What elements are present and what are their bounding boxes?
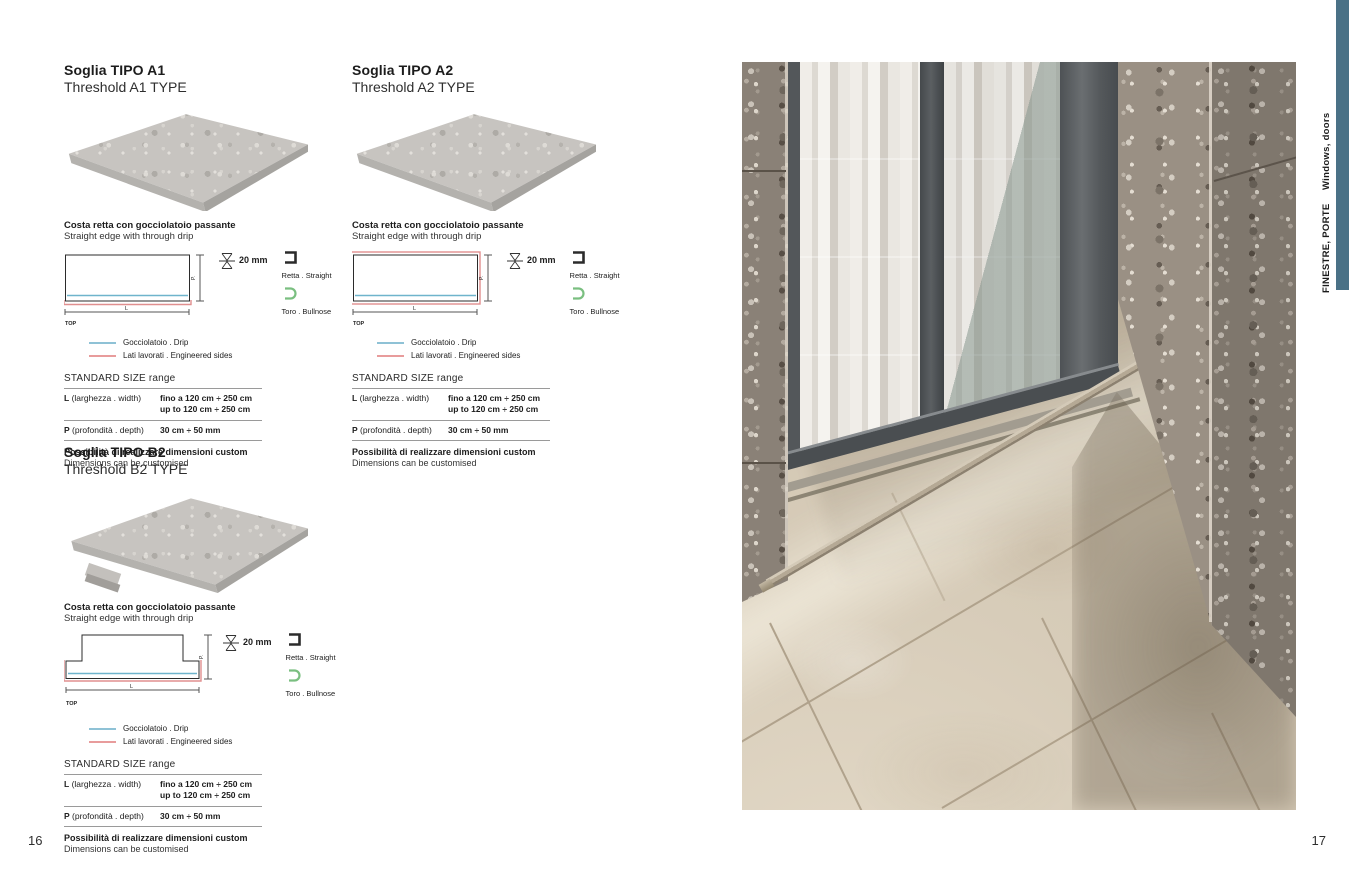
edge-heading-en: Straight edge with through drip [64, 613, 316, 624]
profile-bullnose-label: Toro . Bullnose [570, 307, 620, 316]
depth-label: P (profondità . depth) [64, 425, 160, 436]
top-label: TOP [65, 321, 77, 327]
top-label: TOP [353, 321, 365, 327]
profile-straight-label: Retta . Straight [570, 271, 620, 280]
drawing-legend: Gocciolatoio . Drip Lati lavorati . Engi… [89, 724, 316, 746]
thickness-spec: 20 mm [506, 251, 556, 271]
width-label: L (larghezza . width) [64, 779, 160, 802]
size-row-depth: P (profondità . depth) 30 cm ÷ 50 mm [352, 420, 550, 440]
depth-value: 30 cm ÷ 50 mm [160, 425, 262, 436]
thickness-value: 20 mm [239, 255, 268, 265]
depth-value: 30 cm ÷ 50 mm [160, 811, 262, 822]
custom-note-en: Dimensions can be customised [64, 844, 316, 854]
door-stile [788, 62, 800, 482]
size-row-width: L (larghezza . width) fino a 120 cm ÷ 25… [352, 388, 550, 420]
depth-axis-label: P. [479, 276, 485, 280]
profile-straight-label: Retta . Straight [282, 271, 332, 280]
legend-sides-label: Lati lavorati . Engineered sides [411, 351, 520, 360]
scene-photo-threshold-installation [742, 62, 1296, 810]
legend-drip-label: Gocciolatoio . Drip [411, 338, 476, 347]
bullnose-edge-icon [286, 668, 304, 683]
thickness-icon [222, 633, 240, 653]
size-row-depth: P (profondità . depth) 30 cm ÷ 50 mm [64, 420, 262, 440]
slab-top-face [64, 107, 308, 211]
slab-top-face [352, 107, 596, 211]
length-label: L [125, 306, 128, 312]
profile-bullnose: Toro . Bullnose [282, 286, 332, 316]
size-row-width: L (larghezza . width) fino a 120 cm ÷ 25… [64, 774, 262, 806]
category-tab: FINESTRE, PORTE Windows, doors [1321, 58, 1332, 293]
width-label: L (larghezza . width) [352, 393, 448, 416]
edge-profiles: Retta . Straight Toro . Bullnose [570, 250, 620, 322]
product-photo-b2 [64, 489, 308, 593]
depth-axis-label: P. [191, 276, 197, 280]
edge-heading-it: Costa retta con gocciolatoio passante [64, 220, 316, 231]
drip-swatch [89, 342, 116, 344]
size-table: L (larghezza . width) fino a 120 cm ÷ 25… [64, 388, 262, 441]
drip-swatch [89, 728, 116, 730]
length-label: L [130, 684, 133, 690]
edge-profiles: Retta . Straight Toro . Bullnose [282, 250, 332, 322]
legend-sides-label: Lati lavorati . Engineered sides [123, 351, 232, 360]
edge-heading-en: Straight edge with through drip [64, 231, 316, 242]
wall-seam [742, 170, 786, 172]
size-range-title: STANDARD SIZE range [64, 759, 316, 770]
left-wall-edge-highlight [785, 62, 788, 570]
legend-sides: Lati lavorati . Engineered sides [89, 351, 316, 360]
legend-sides: Lati lavorati . Engineered sides [377, 351, 604, 360]
profile-straight: Retta . Straight [286, 632, 336, 662]
bullnose-edge-icon [570, 286, 588, 301]
edge-heading-en: Straight edge with through drip [352, 231, 604, 242]
section-drawing-a2: P. L TOP [352, 249, 502, 329]
category-label-it: FINESTRE, PORTE [1321, 204, 1332, 293]
section-drawing-a1: P. L TOP [64, 249, 214, 329]
size-row-depth: P (profondità . depth) 30 cm ÷ 50 mm [64, 806, 262, 826]
thickness-value: 20 mm [243, 637, 272, 647]
technical-diagram-a2: P. L TOP 20 mm Retta . Straight [352, 249, 604, 329]
top-label: TOP [66, 701, 78, 707]
product-title-it: Soglia TIPO A2 [352, 62, 604, 78]
product-photo-a2 [352, 107, 596, 211]
profile-bullnose-label: Toro . Bullnose [286, 689, 336, 698]
drawing-legend: Gocciolatoio . Drip Lati lavorati . Engi… [89, 338, 316, 360]
page-number-left: 16 [28, 833, 42, 848]
legend-drip: Gocciolatoio . Drip [377, 338, 604, 347]
product-title-en: Threshold A1 TYPE [64, 79, 316, 95]
length-label: L [413, 306, 416, 312]
technical-diagram-a1: P. L TOP 20 mm Retta . Straight [64, 249, 316, 329]
section-drawing-b2: P. L TOP [64, 631, 218, 715]
custom-note-it: Possibilità di realizzare dimensioni cus… [352, 447, 604, 457]
straight-edge-icon [570, 250, 588, 265]
width-value: fino a 120 cm ÷ 250 cm up to 120 cm ÷ 25… [160, 779, 262, 802]
drawing-legend: Gocciolatoio . Drip Lati lavorati . Engi… [377, 338, 604, 360]
product-section-b2: Soglia TIPO B2 Threshold B2 TYPE Costa r… [64, 444, 316, 854]
width-value: fino a 120 cm ÷ 250 cm up to 120 cm ÷ 25… [448, 393, 550, 416]
thickness-spec: 20 mm [222, 633, 272, 653]
width-value: fino a 120 cm ÷ 250 cm up to 120 cm ÷ 25… [160, 393, 262, 416]
legend-drip: Gocciolatoio . Drip [89, 724, 316, 733]
edge-heading-it: Costa retta con gocciolatoio passante [64, 602, 316, 613]
technical-diagram-b2: P. L TOP 20 mm Retta . Straight [64, 631, 316, 715]
thickness-value: 20 mm [527, 255, 556, 265]
product-title-it: Soglia TIPO B2 [64, 444, 316, 460]
legend-drip: Gocciolatoio . Drip [89, 338, 316, 347]
straight-edge-icon [286, 632, 304, 647]
depth-axis-label: P. [199, 655, 205, 659]
category-color-bar [1336, 0, 1349, 290]
size-table: L (larghezza . width) fino a 120 cm ÷ 25… [352, 388, 550, 441]
size-range-title: STANDARD SIZE range [64, 373, 316, 384]
page-number-right: 17 [1312, 833, 1326, 848]
bullnose-edge-icon [282, 286, 300, 301]
sides-swatch [89, 355, 116, 357]
legend-drip-label: Gocciolatoio . Drip [123, 338, 188, 347]
product-title-en: Threshold A2 TYPE [352, 79, 604, 95]
product-title-it: Soglia TIPO A1 [64, 62, 316, 78]
legend-sides-label: Lati lavorati . Engineered sides [123, 737, 232, 746]
profile-bullnose-label: Toro . Bullnose [282, 307, 332, 316]
product-section-a2: Soglia TIPO A2 Threshold A2 TYPE Costa r… [352, 62, 604, 468]
sides-swatch [89, 741, 116, 743]
edge-heading-it: Costa retta con gocciolatoio passante [352, 220, 604, 231]
product-title-en: Threshold B2 TYPE [64, 461, 316, 477]
width-label: L (larghezza . width) [64, 393, 160, 416]
profile-straight: Retta . Straight [282, 250, 332, 280]
thickness-icon [506, 251, 524, 271]
profile-straight-label: Retta . Straight [286, 653, 336, 662]
edge-profiles: Retta . Straight Toro . Bullnose [286, 632, 336, 704]
thickness-spec: 20 mm [218, 251, 268, 271]
category-label-en: Windows, doors [1321, 112, 1332, 189]
size-range-title: STANDARD SIZE range [352, 373, 604, 384]
depth-value: 30 cm ÷ 50 mm [448, 425, 550, 436]
profile-straight: Retta . Straight [570, 250, 620, 280]
size-table: L (larghezza . width) fino a 120 cm ÷ 25… [64, 774, 262, 827]
wall-seam [742, 462, 786, 464]
thickness-icon [218, 251, 236, 271]
wall-corner-highlight [1209, 62, 1212, 622]
glass-reflection-lines [800, 62, 920, 482]
legend-sides: Lati lavorati . Engineered sides [89, 737, 316, 746]
size-row-width: L (larghezza . width) fino a 120 cm ÷ 25… [64, 388, 262, 420]
custom-note-en: Dimensions can be customised [352, 458, 604, 468]
drip-swatch [377, 342, 404, 344]
profile-bullnose: Toro . Bullnose [570, 286, 620, 316]
custom-note-it: Possibilità di realizzare dimensioni cus… [64, 833, 316, 843]
depth-label: P (profondità . depth) [64, 811, 160, 822]
straight-edge-icon [282, 250, 300, 265]
product-photo-a1 [64, 107, 308, 211]
product-section-a1: Soglia TIPO A1 Threshold A1 TYPE Costa r… [64, 62, 316, 468]
profile-bullnose: Toro . Bullnose [286, 668, 336, 698]
legend-drip-label: Gocciolatoio . Drip [123, 724, 188, 733]
depth-label: P (profondità . depth) [352, 425, 448, 436]
sides-swatch [377, 355, 404, 357]
left-stone-wall [742, 62, 788, 602]
